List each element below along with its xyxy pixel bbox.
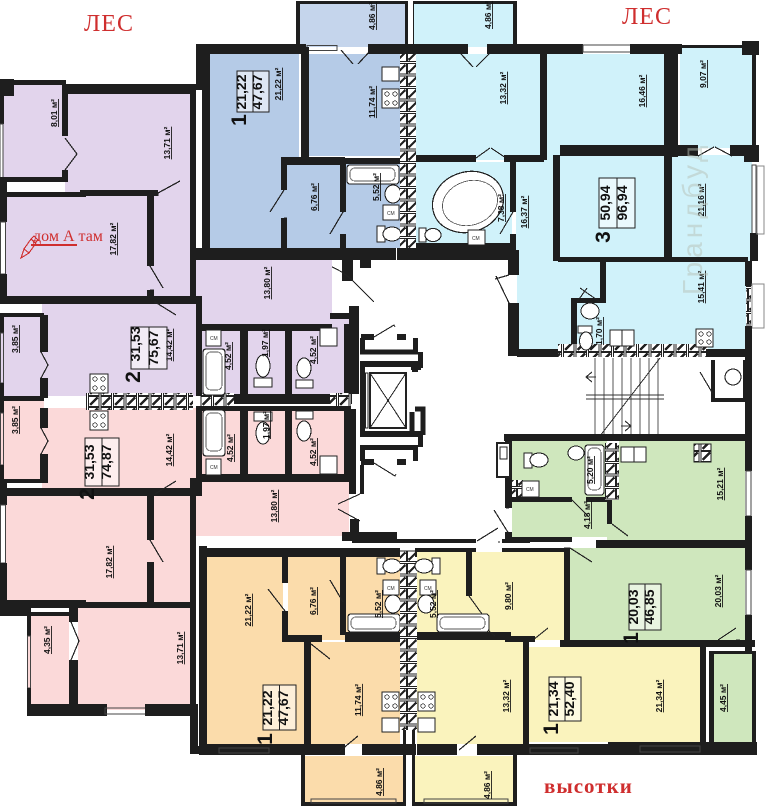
svg-text:21,22: 21,22 [259, 690, 275, 725]
svg-text:20,03: 20,03 [625, 589, 641, 624]
svg-text:13,32 м²: 13,32 м² [501, 679, 511, 712]
svg-text:96,94: 96,94 [614, 185, 630, 220]
svg-text:21,22 м²: 21,22 м² [243, 593, 253, 626]
svg-text:1: 1 [540, 723, 563, 735]
svg-text:13,71 м²: 13,71 м² [175, 631, 185, 664]
svg-text:13,71 м²: 13,71 м² [162, 126, 172, 159]
svg-text:16,37 м²: 16,37 м² [519, 195, 529, 228]
svg-text:СМ: СМ [387, 586, 395, 592]
svg-text:1: 1 [254, 733, 277, 745]
svg-text:СМ: СМ [387, 211, 395, 217]
svg-text:46,85: 46,85 [641, 589, 657, 624]
svg-text:ЛЕС: ЛЕС [622, 4, 672, 30]
svg-text:50,94: 50,94 [597, 185, 613, 220]
svg-text:4,52 м²: 4,52 м² [308, 438, 318, 466]
svg-text:СМ: СМ [526, 487, 534, 493]
svg-text:3,85 м²: 3,85 м² [10, 325, 20, 353]
svg-text:4,18 м²: 4,18 м² [582, 501, 592, 529]
svg-text:3: 3 [592, 231, 615, 243]
svg-text:4,45 м²: 4,45 м² [718, 684, 728, 712]
svg-text:СМ: СМ [472, 236, 480, 242]
svg-text:17,82 м²: 17,82 м² [108, 222, 118, 255]
svg-text:1,97 м²: 1,97 м² [261, 411, 271, 439]
svg-text:ЛЕС: ЛЕС [84, 11, 134, 37]
svg-text:11,74 м²: 11,74 м² [353, 684, 363, 716]
svg-text:4,86 м²: 4,86 м² [367, 2, 377, 30]
svg-text:3,85 м²: 3,85 м² [10, 406, 20, 434]
svg-text:6,76 м²: 6,76 м² [309, 183, 319, 211]
svg-text:4,52 м²: 4,52 м² [225, 434, 235, 462]
svg-text:4,52 м²: 4,52 м² [223, 342, 233, 370]
svg-text:4,86 м²: 4,86 м² [482, 771, 492, 799]
svg-text:6,76 м²: 6,76 м² [308, 587, 318, 615]
svg-text:4,35 м²: 4,35 м² [42, 626, 52, 654]
svg-text:52,40: 52,40 [561, 681, 577, 716]
svg-text:21,34 м²: 21,34 м² [654, 679, 664, 712]
svg-text:13,32 м²: 13,32 м² [498, 71, 508, 104]
svg-text:11,74 м²: 11,74 м² [367, 86, 377, 118]
svg-text:2: 2 [76, 488, 99, 500]
svg-text:дом А там: дом А там [33, 228, 103, 245]
svg-text:75,67: 75,67 [145, 330, 161, 365]
svg-text:15,21 м²: 15,21 м² [715, 467, 725, 500]
svg-text:14,42 м²: 14,42 м² [164, 433, 174, 466]
svg-text:4,52 м²: 4,52 м² [308, 336, 318, 364]
svg-text:1,70 м²: 1,70 м² [594, 317, 604, 345]
svg-text:4,86 м²: 4,86 м² [483, 1, 493, 29]
svg-text:4,86 м²: 4,86 м² [374, 768, 384, 796]
svg-text:5,52 м²: 5,52 м² [428, 590, 438, 618]
svg-text:13,80 м²: 13,80 м² [262, 266, 272, 299]
svg-text:Грандбуд: Грандбуд [677, 142, 708, 295]
svg-text:16,46 м²: 16,46 м² [637, 74, 647, 107]
svg-text:47,67: 47,67 [249, 74, 265, 109]
svg-text:высотки: высотки [544, 774, 633, 798]
svg-text:9,07 м²: 9,07 м² [698, 60, 708, 88]
svg-text:1: 1 [620, 632, 643, 644]
svg-text:21,22: 21,22 [233, 74, 249, 109]
svg-text:5,52 м²: 5,52 м² [373, 590, 383, 618]
svg-text:21,34: 21,34 [545, 681, 561, 716]
svg-text:8,01 м²: 8,01 м² [49, 99, 59, 127]
svg-text:20,03 м²: 20,03 м² [713, 574, 723, 607]
svg-text:17,82 м²: 17,82 м² [104, 545, 114, 578]
svg-text:СМ: СМ [210, 336, 218, 342]
svg-text:5,52 м²: 5,52 м² [371, 173, 381, 201]
svg-text:7,38 м²: 7,38 м² [496, 194, 506, 222]
svg-text:1,97 м²: 1,97 м² [260, 329, 270, 357]
svg-text:47,67: 47,67 [275, 690, 291, 725]
svg-text:1: 1 [228, 114, 251, 126]
svg-text:9,80 м²: 9,80 м² [503, 582, 513, 610]
svg-text:74,87: 74,87 [98, 444, 114, 479]
svg-text:СМ: СМ [210, 465, 218, 471]
svg-text:21,22 м²: 21,22 м² [273, 67, 283, 100]
svg-text:2: 2 [122, 371, 145, 383]
svg-text:13,80 м²: 13,80 м² [269, 489, 279, 522]
svg-text:31,53: 31,53 [127, 326, 143, 361]
svg-text:5,20 м²: 5,20 м² [585, 456, 595, 484]
svg-text:31,53: 31,53 [81, 444, 97, 479]
